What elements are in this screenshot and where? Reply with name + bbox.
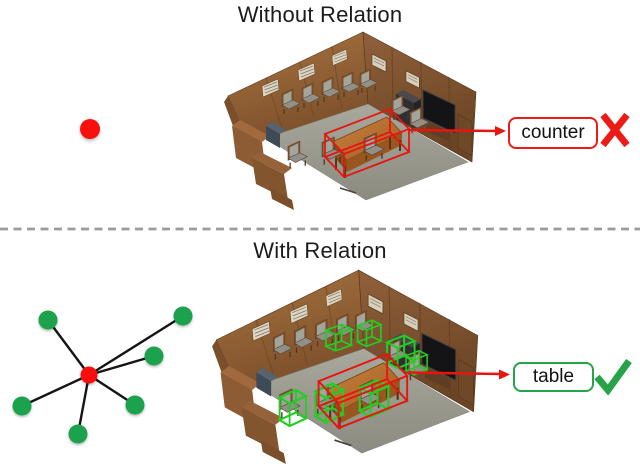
- bottom-section-title: With Relation: [0, 238, 640, 264]
- graph-node-green: [145, 347, 164, 366]
- room-illustration: [224, 32, 476, 210]
- top-section-title: Without Relation: [0, 2, 640, 28]
- graph-node-center-red: [81, 367, 98, 384]
- prediction-label-table: table: [513, 362, 594, 392]
- cross-icon: [598, 111, 632, 149]
- graph-node-green: [13, 397, 32, 416]
- graph-node-green: [39, 311, 58, 330]
- graph-edge: [78, 375, 89, 434]
- figure-canvas: { "top_panel": { "title": "Without Relat…: [0, 0, 640, 466]
- graph-node-green: [174, 307, 193, 326]
- room-illustration: [212, 270, 478, 464]
- relation-graph: [13, 307, 193, 444]
- graph-edge: [89, 356, 154, 375]
- graph-edge: [22, 375, 89, 406]
- check-icon: [593, 355, 633, 395]
- prediction-label-counter: counter: [508, 117, 598, 149]
- isolated-object-node: [80, 119, 100, 139]
- graph-node-green: [69, 425, 88, 444]
- graph-edge: [48, 320, 89, 375]
- graph-edge: [89, 316, 183, 375]
- graph-node-green: [126, 396, 145, 415]
- room-scan-without-relation: [222, 30, 480, 210]
- graph-edge: [89, 375, 135, 405]
- room-scan-with-relation: [210, 268, 482, 464]
